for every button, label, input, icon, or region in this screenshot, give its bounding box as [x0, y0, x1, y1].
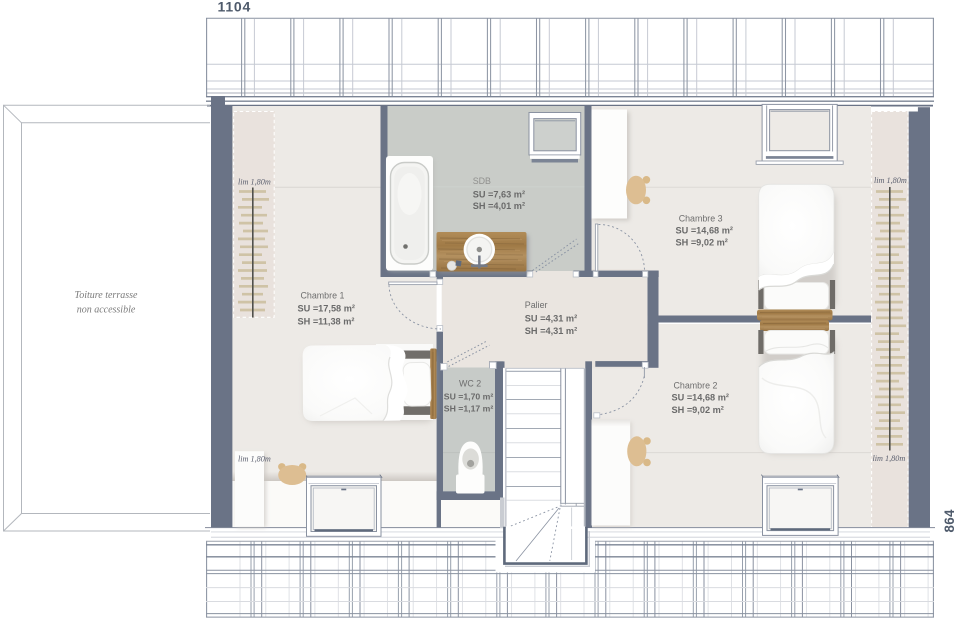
svg-text:Chambre 1: Chambre 1 [301, 291, 345, 301]
svg-text:lim 1,80m: lim 1,80m [874, 176, 907, 185]
svg-text:Toiture terrasse: Toiture terrasse [75, 290, 138, 301]
svg-text:lim 1,80m: lim 1,80m [873, 454, 906, 463]
svg-text:SH =9,02 m²: SH =9,02 m² [676, 238, 728, 248]
svg-text:1104: 1104 [218, 0, 252, 15]
svg-text:WC 2: WC 2 [459, 379, 481, 389]
svg-text:SH =1,17 m²: SH =1,17 m² [444, 403, 494, 413]
svg-text:SU =14,68 m²: SU =14,68 m² [676, 226, 733, 236]
svg-text:SH =11,38 m²: SH =11,38 m² [298, 317, 355, 327]
svg-text:SDB: SDB [473, 176, 491, 186]
svg-text:SU =4,31 m²: SU =4,31 m² [525, 314, 577, 324]
svg-text:SH =4,01 m²: SH =4,01 m² [473, 201, 525, 211]
svg-text:Chambre 2: Chambre 2 [674, 381, 718, 391]
svg-text:Palier: Palier [525, 300, 548, 310]
svg-text:lim 1,80m: lim 1,80m [238, 178, 271, 187]
svg-text:SH =4,31 m²: SH =4,31 m² [525, 326, 577, 336]
svg-text:Chambre 3: Chambre 3 [679, 214, 723, 224]
svg-text:SU =17,58 m²: SU =17,58 m² [298, 304, 355, 314]
svg-text:non accessible: non accessible [77, 305, 136, 316]
svg-text:lim 1,80m: lim 1,80m [238, 454, 271, 463]
svg-text:SU =7,63 m²: SU =7,63 m² [473, 189, 525, 199]
svg-text:SU =14,68 m²: SU =14,68 m² [672, 393, 729, 403]
svg-text:SH =9,02 m²: SH =9,02 m² [672, 405, 724, 415]
svg-text:SU =1,70 m²: SU =1,70 m² [444, 392, 494, 402]
svg-text:864: 864 [942, 509, 957, 532]
